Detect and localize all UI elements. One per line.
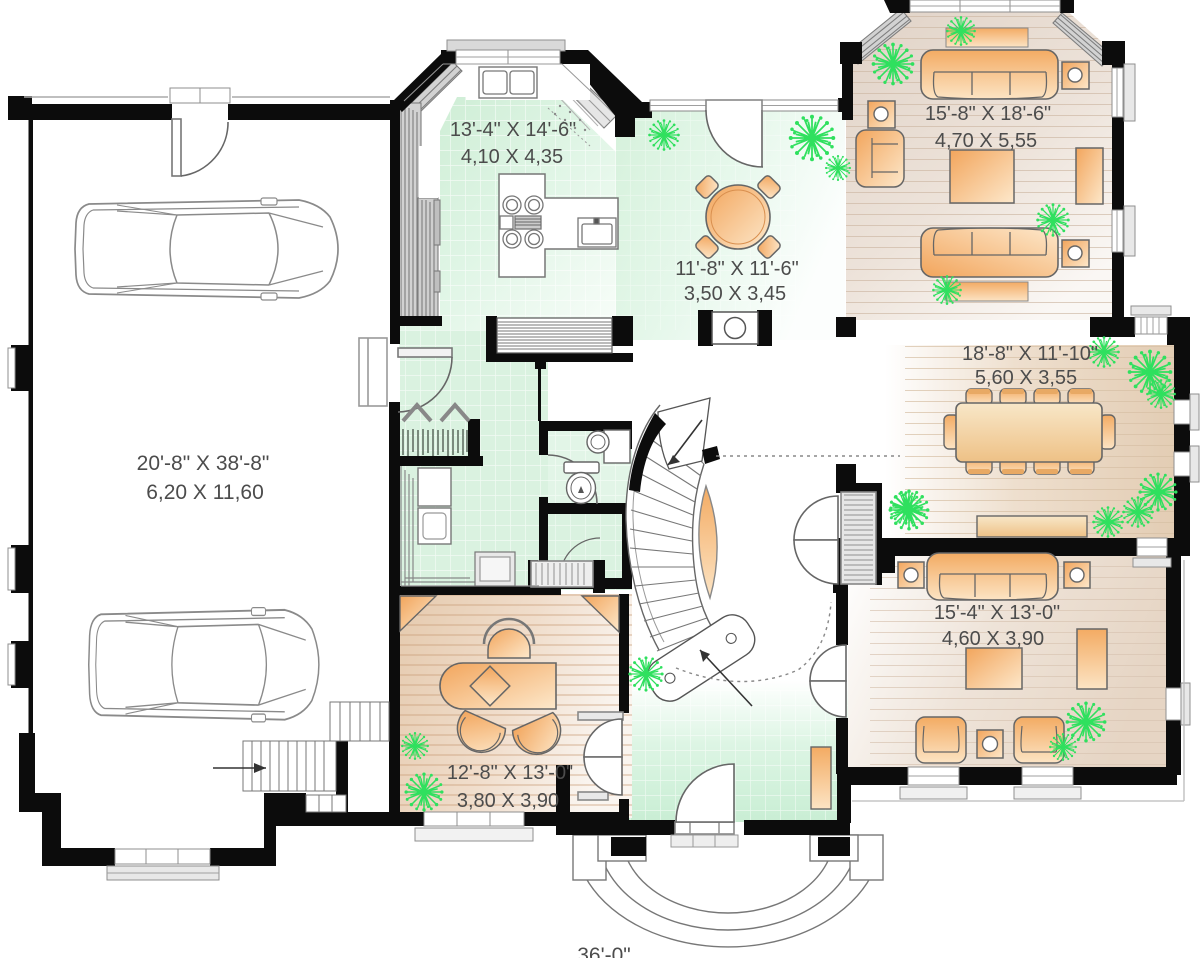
- svg-text:6,20 X 11,60: 6,20 X 11,60: [146, 481, 264, 504]
- svg-text:3,50 X 3,45: 3,50 X 3,45: [684, 283, 786, 305]
- svg-text:15'-4" X 13'-0": 15'-4" X 13'-0": [934, 602, 1060, 624]
- svg-text:4,70 X 5,55: 4,70 X 5,55: [935, 130, 1037, 152]
- svg-text:12'-8" X 13'-0": 12'-8" X 13'-0": [447, 762, 573, 784]
- svg-text:5,60 X 3,55: 5,60 X 3,55: [975, 367, 1077, 389]
- svg-text:36'-0": 36'-0": [577, 944, 631, 958]
- svg-text:4,60 X 3,90: 4,60 X 3,90: [942, 628, 1044, 650]
- svg-text:18'-8" X 11'-10": 18'-8" X 11'-10": [962, 343, 1098, 365]
- svg-text:4,10 X 4,35: 4,10 X 4,35: [461, 146, 563, 168]
- svg-text:15'-8" X 18'-6": 15'-8" X 18'-6": [925, 103, 1051, 125]
- svg-text:20'-8" X 38'-8": 20'-8" X 38'-8": [137, 452, 270, 475]
- svg-text:3,80 X 3,90: 3,80 X 3,90: [457, 790, 559, 812]
- svg-text:11'-8" X 11'-6": 11'-8" X 11'-6": [675, 258, 798, 280]
- svg-text:13'-4" X 14'-6": 13'-4" X 14'-6": [450, 119, 576, 141]
